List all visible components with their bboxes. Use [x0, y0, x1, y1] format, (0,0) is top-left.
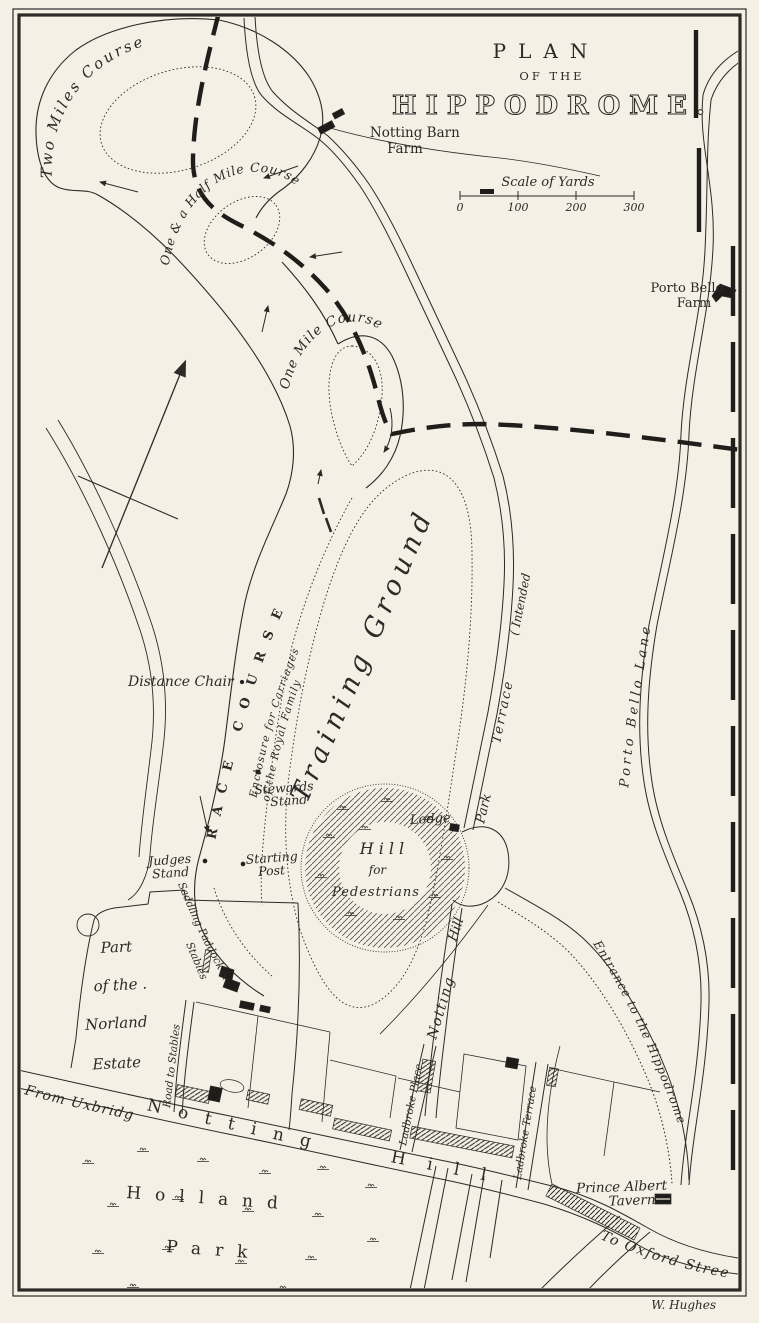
title-hippodrome: HIPPODROME.: [392, 91, 714, 121]
judges-stand-mark: [203, 859, 207, 863]
engraver-signature: W. Hughes: [651, 1298, 716, 1312]
scale-bar-label: Scale of Yards: [501, 175, 595, 190]
scale-tick-300: 300: [624, 201, 645, 214]
title-plan: PLAN: [493, 39, 600, 63]
scale-tick-0: 0: [457, 201, 464, 214]
label-distance-chair: Distance Chair: [127, 674, 235, 690]
label-lodge: Lodge: [409, 811, 452, 828]
scale-tick-100: 100: [508, 201, 529, 214]
title-of-the: OF THE: [519, 69, 584, 83]
map-plan-of-the-hippodrome: Scale of Yards 0 100 200 300 PLAN OF THE…: [0, 0, 759, 1323]
starting-post-mark: [241, 862, 245, 866]
distance-chair-mark: [240, 680, 244, 684]
prince-albert-tavern-building: [655, 1194, 671, 1204]
scale-tick-200: 200: [565, 201, 587, 214]
